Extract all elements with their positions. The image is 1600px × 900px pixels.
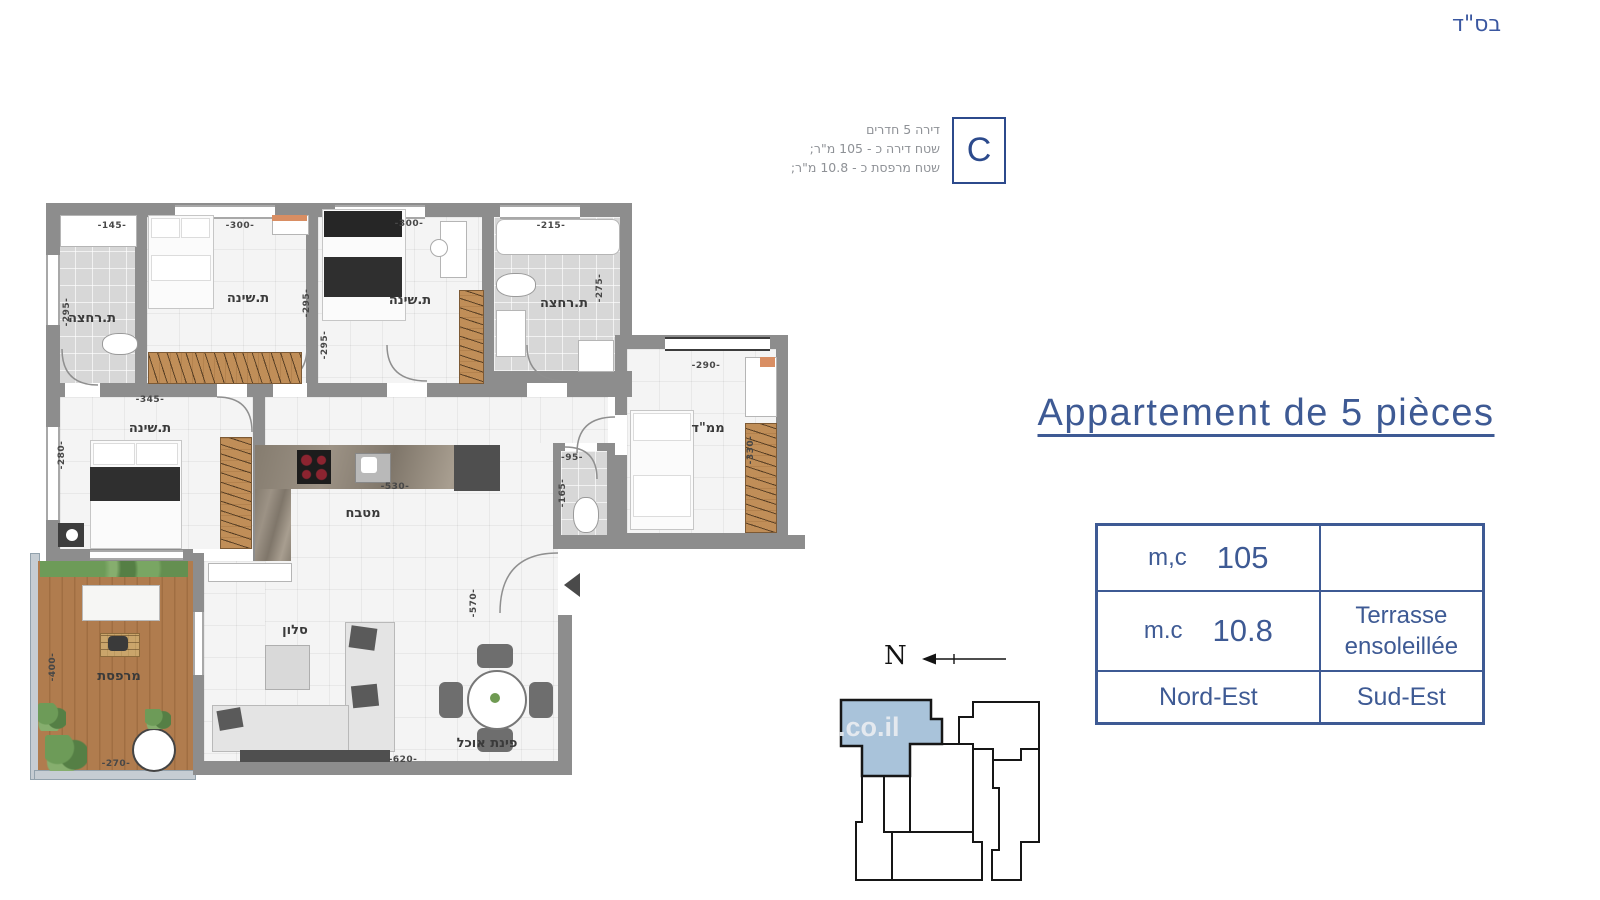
room-label-master: ת.שינה xyxy=(115,421,185,436)
dim-mamad-h: -330- xyxy=(746,428,758,472)
toilet xyxy=(496,273,536,297)
entrance-arrow-icon xyxy=(564,573,580,597)
area-label: m,c xyxy=(1148,544,1187,572)
dim-wc-h: -165- xyxy=(558,471,570,515)
dining-chair xyxy=(477,644,513,668)
floor-plan: מרפסת -400- -270- xyxy=(30,195,795,780)
unit-letter-box: C xyxy=(952,117,1006,184)
north-arrow-icon xyxy=(910,650,1010,668)
keyplan-unit xyxy=(856,776,892,880)
bath-vanity xyxy=(496,310,526,357)
sofa-pillow xyxy=(349,625,378,650)
dining-chair xyxy=(529,682,553,718)
table-row: m,c 105 xyxy=(1097,525,1484,592)
room-label-mamad: ממ"ד xyxy=(673,421,743,436)
bed-blanket-fold xyxy=(633,475,691,517)
wardrobe xyxy=(220,437,252,549)
watermark-text: .co.il xyxy=(838,712,900,742)
dim-master-w: -345- xyxy=(115,395,185,407)
sofa-pillow xyxy=(216,707,243,731)
unit-info-line: שטח מרפסת כ - 10.8 מ"ר; xyxy=(690,158,940,177)
fridge xyxy=(454,445,500,491)
keyplan-unit xyxy=(992,749,1039,880)
toilet xyxy=(573,497,599,533)
orientation-terrace-cell: Sud-Est xyxy=(1320,671,1484,724)
sideboard xyxy=(208,563,292,582)
bed-blanket xyxy=(324,257,402,297)
empty-cell xyxy=(1320,525,1484,592)
table-row: m.c 10.8 Terrasse ensoleillée xyxy=(1097,591,1484,671)
orientation-main-cell: Nord-Est xyxy=(1097,671,1320,724)
table-row: Nord-Est Sud-Est xyxy=(1097,671,1484,724)
desk-chair xyxy=(430,239,448,257)
terrace-area-cell: m.c 10.8 xyxy=(1097,591,1320,671)
stove xyxy=(297,450,331,484)
dim-bedroom1-h: -295- xyxy=(302,281,314,325)
terrace-label: m.c xyxy=(1144,617,1183,645)
sofa-pillow xyxy=(351,684,379,709)
keyplan-unit xyxy=(910,744,973,832)
terrace-value: 10.8 xyxy=(1213,613,1273,649)
dim-bath2-w: -215- xyxy=(516,221,586,233)
table-centerpiece xyxy=(490,693,500,703)
spec-table: m,c 105 m.c 10.8 Terrasse ensoleillée No… xyxy=(1095,523,1485,725)
shower xyxy=(578,340,614,372)
page: בס"ד דירה 5 חדרים שטח דירה כ - 105 מ"ר; … xyxy=(0,0,1600,900)
dresser-accent xyxy=(272,215,307,221)
unit-info-block: דירה 5 חדרים שטח דירה כ - 105 מ"ר; שטח מ… xyxy=(690,120,940,177)
toilet xyxy=(102,333,138,355)
terrace-name-cell: Terrasse ensoleillée xyxy=(1320,591,1484,671)
keyplan-unit xyxy=(892,832,982,880)
terrace-name-line: Terrasse xyxy=(1321,600,1482,631)
bed-pillow xyxy=(93,443,135,465)
room-label-dining: פינת אוכל xyxy=(442,736,532,751)
terrace-name-line: ensoleillée xyxy=(1321,631,1482,662)
closet-accent xyxy=(760,357,775,367)
area-cell: m,c 105 xyxy=(1097,525,1320,592)
kitchen-counter xyxy=(255,489,291,561)
sink-basin xyxy=(361,457,377,473)
dim-bedroom2-h: -295- xyxy=(320,323,332,367)
lamp xyxy=(66,529,78,541)
dim-kitchen-w: -530- xyxy=(360,482,430,494)
dim-living-w: -620- xyxy=(368,755,438,767)
unit-info-line: דירה 5 חדרים xyxy=(690,120,940,139)
area-value: 105 xyxy=(1217,540,1269,576)
room-label-bedroom2: ת.שינה xyxy=(375,293,445,308)
dim-bedroom2-w: -300- xyxy=(374,219,444,231)
bed-blanket xyxy=(90,467,180,501)
dim-master-h: -280- xyxy=(57,433,69,477)
dim-mamad-w: -290- xyxy=(671,361,741,373)
dim-bath1-h: -295- xyxy=(62,290,74,334)
compass-north-letter: N xyxy=(884,641,907,671)
dim-bedroom1-w: -300- xyxy=(205,221,275,233)
bed-blanket-fold xyxy=(151,255,211,281)
bsd-text: בס"ד xyxy=(1452,12,1532,37)
bed-pillow xyxy=(151,218,180,238)
dim-bath1-w: -145- xyxy=(77,221,147,233)
room-label-bedroom1: ת.שינה xyxy=(213,291,283,306)
unit-letter: C xyxy=(967,131,992,170)
room-label-kitchen: מטבח xyxy=(328,506,398,521)
dim-bath2-h: -275- xyxy=(595,266,607,310)
wardrobe xyxy=(148,352,302,384)
dim-wc-w: -95- xyxy=(548,453,596,465)
unit-info-line: שטח דירה כ - 105 מ"ר; xyxy=(690,139,940,158)
room-label-bath2: ת.רחצה xyxy=(529,296,599,311)
coffee-table xyxy=(265,645,310,690)
dim-living-h: -570- xyxy=(469,581,481,625)
room-label-living: סלון xyxy=(260,623,330,638)
page-title: Appartement de 5 pièces xyxy=(1010,392,1522,435)
bed-pillow xyxy=(136,443,178,465)
dining-chair xyxy=(439,682,463,718)
wardrobe xyxy=(459,290,484,384)
keyplan-diagram: .co.il xyxy=(822,692,1044,888)
